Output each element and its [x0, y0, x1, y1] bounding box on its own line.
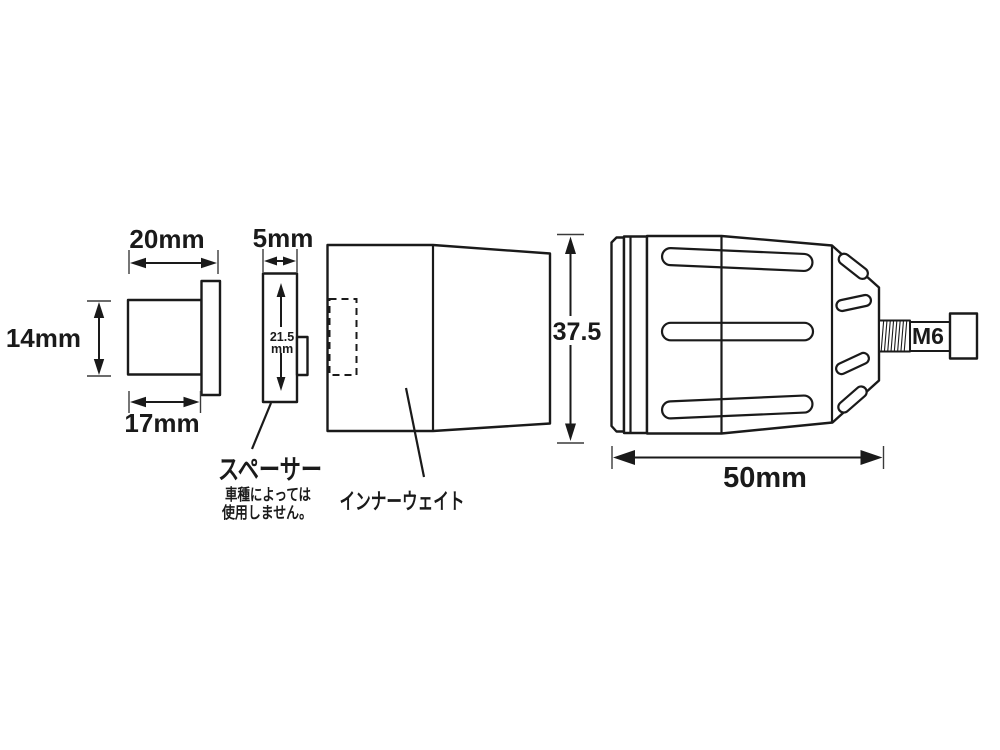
bolt: M6	[879, 314, 977, 359]
spacer-tab	[297, 337, 308, 375]
spacer-label: スペーサー	[218, 455, 322, 485]
end-cap-body	[128, 300, 202, 375]
arrowhead-right	[184, 397, 200, 407]
spacer-note-line1: 車種によっては	[225, 485, 311, 504]
dim-50mm: 50mm	[612, 446, 884, 494]
bolt-size-label: M6	[912, 323, 944, 349]
arrowhead-right	[201, 258, 217, 268]
dim-label-20mm: 20mm	[129, 224, 204, 254]
dim-label-17mm: 17mm	[124, 408, 199, 438]
arrowhead-up	[94, 302, 104, 318]
arrowhead-left	[613, 450, 635, 465]
diagram-canvas: 20mm 14mm 17mm 5mm 21.5 m	[0, 0, 1000, 750]
inner-weight-outline	[328, 245, 551, 431]
end-cap-flange	[202, 281, 221, 395]
bar-end-weight: M6	[612, 236, 978, 434]
bar-end-cap-ring	[612, 238, 625, 432]
dim-label-5mm: 5mm	[253, 223, 314, 253]
bar-end-slot-middle	[662, 323, 813, 341]
dim-37-5: 37.5	[553, 235, 602, 444]
dim-20mm: 20mm	[129, 224, 218, 274]
dim-14mm: 14mm	[6, 301, 111, 376]
dim-label-14mm: 14mm	[6, 323, 81, 353]
technical-drawing: 20mm 14mm 17mm 5mm 21.5 m	[0, 0, 1000, 750]
dim-label-37-5: 37.5	[553, 318, 602, 346]
dim-17mm: 17mm	[124, 391, 200, 438]
inner-weight-label: インナーウェイト	[340, 489, 465, 514]
dim-label-21-5-unit: mm	[271, 342, 293, 356]
spacer-note-line2: 使用しません。	[221, 503, 312, 522]
bolt-head	[950, 314, 977, 359]
arrowhead-right	[283, 257, 296, 266]
arrowhead-left	[130, 258, 146, 268]
arrowhead-left	[264, 257, 277, 266]
arrowhead-right	[861, 450, 883, 465]
end-cap	[128, 281, 220, 395]
bar-end-ring-band	[624, 237, 647, 434]
arrowhead-down	[565, 424, 576, 442]
dim-label-50mm: 50mm	[723, 462, 807, 494]
arrowhead-left	[130, 397, 146, 407]
arrowhead-up	[565, 237, 576, 255]
dim-5mm: 5mm	[253, 223, 314, 272]
leader-line-spacer	[252, 403, 271, 449]
inner-weight	[328, 245, 551, 431]
arrowhead-down	[94, 359, 104, 375]
